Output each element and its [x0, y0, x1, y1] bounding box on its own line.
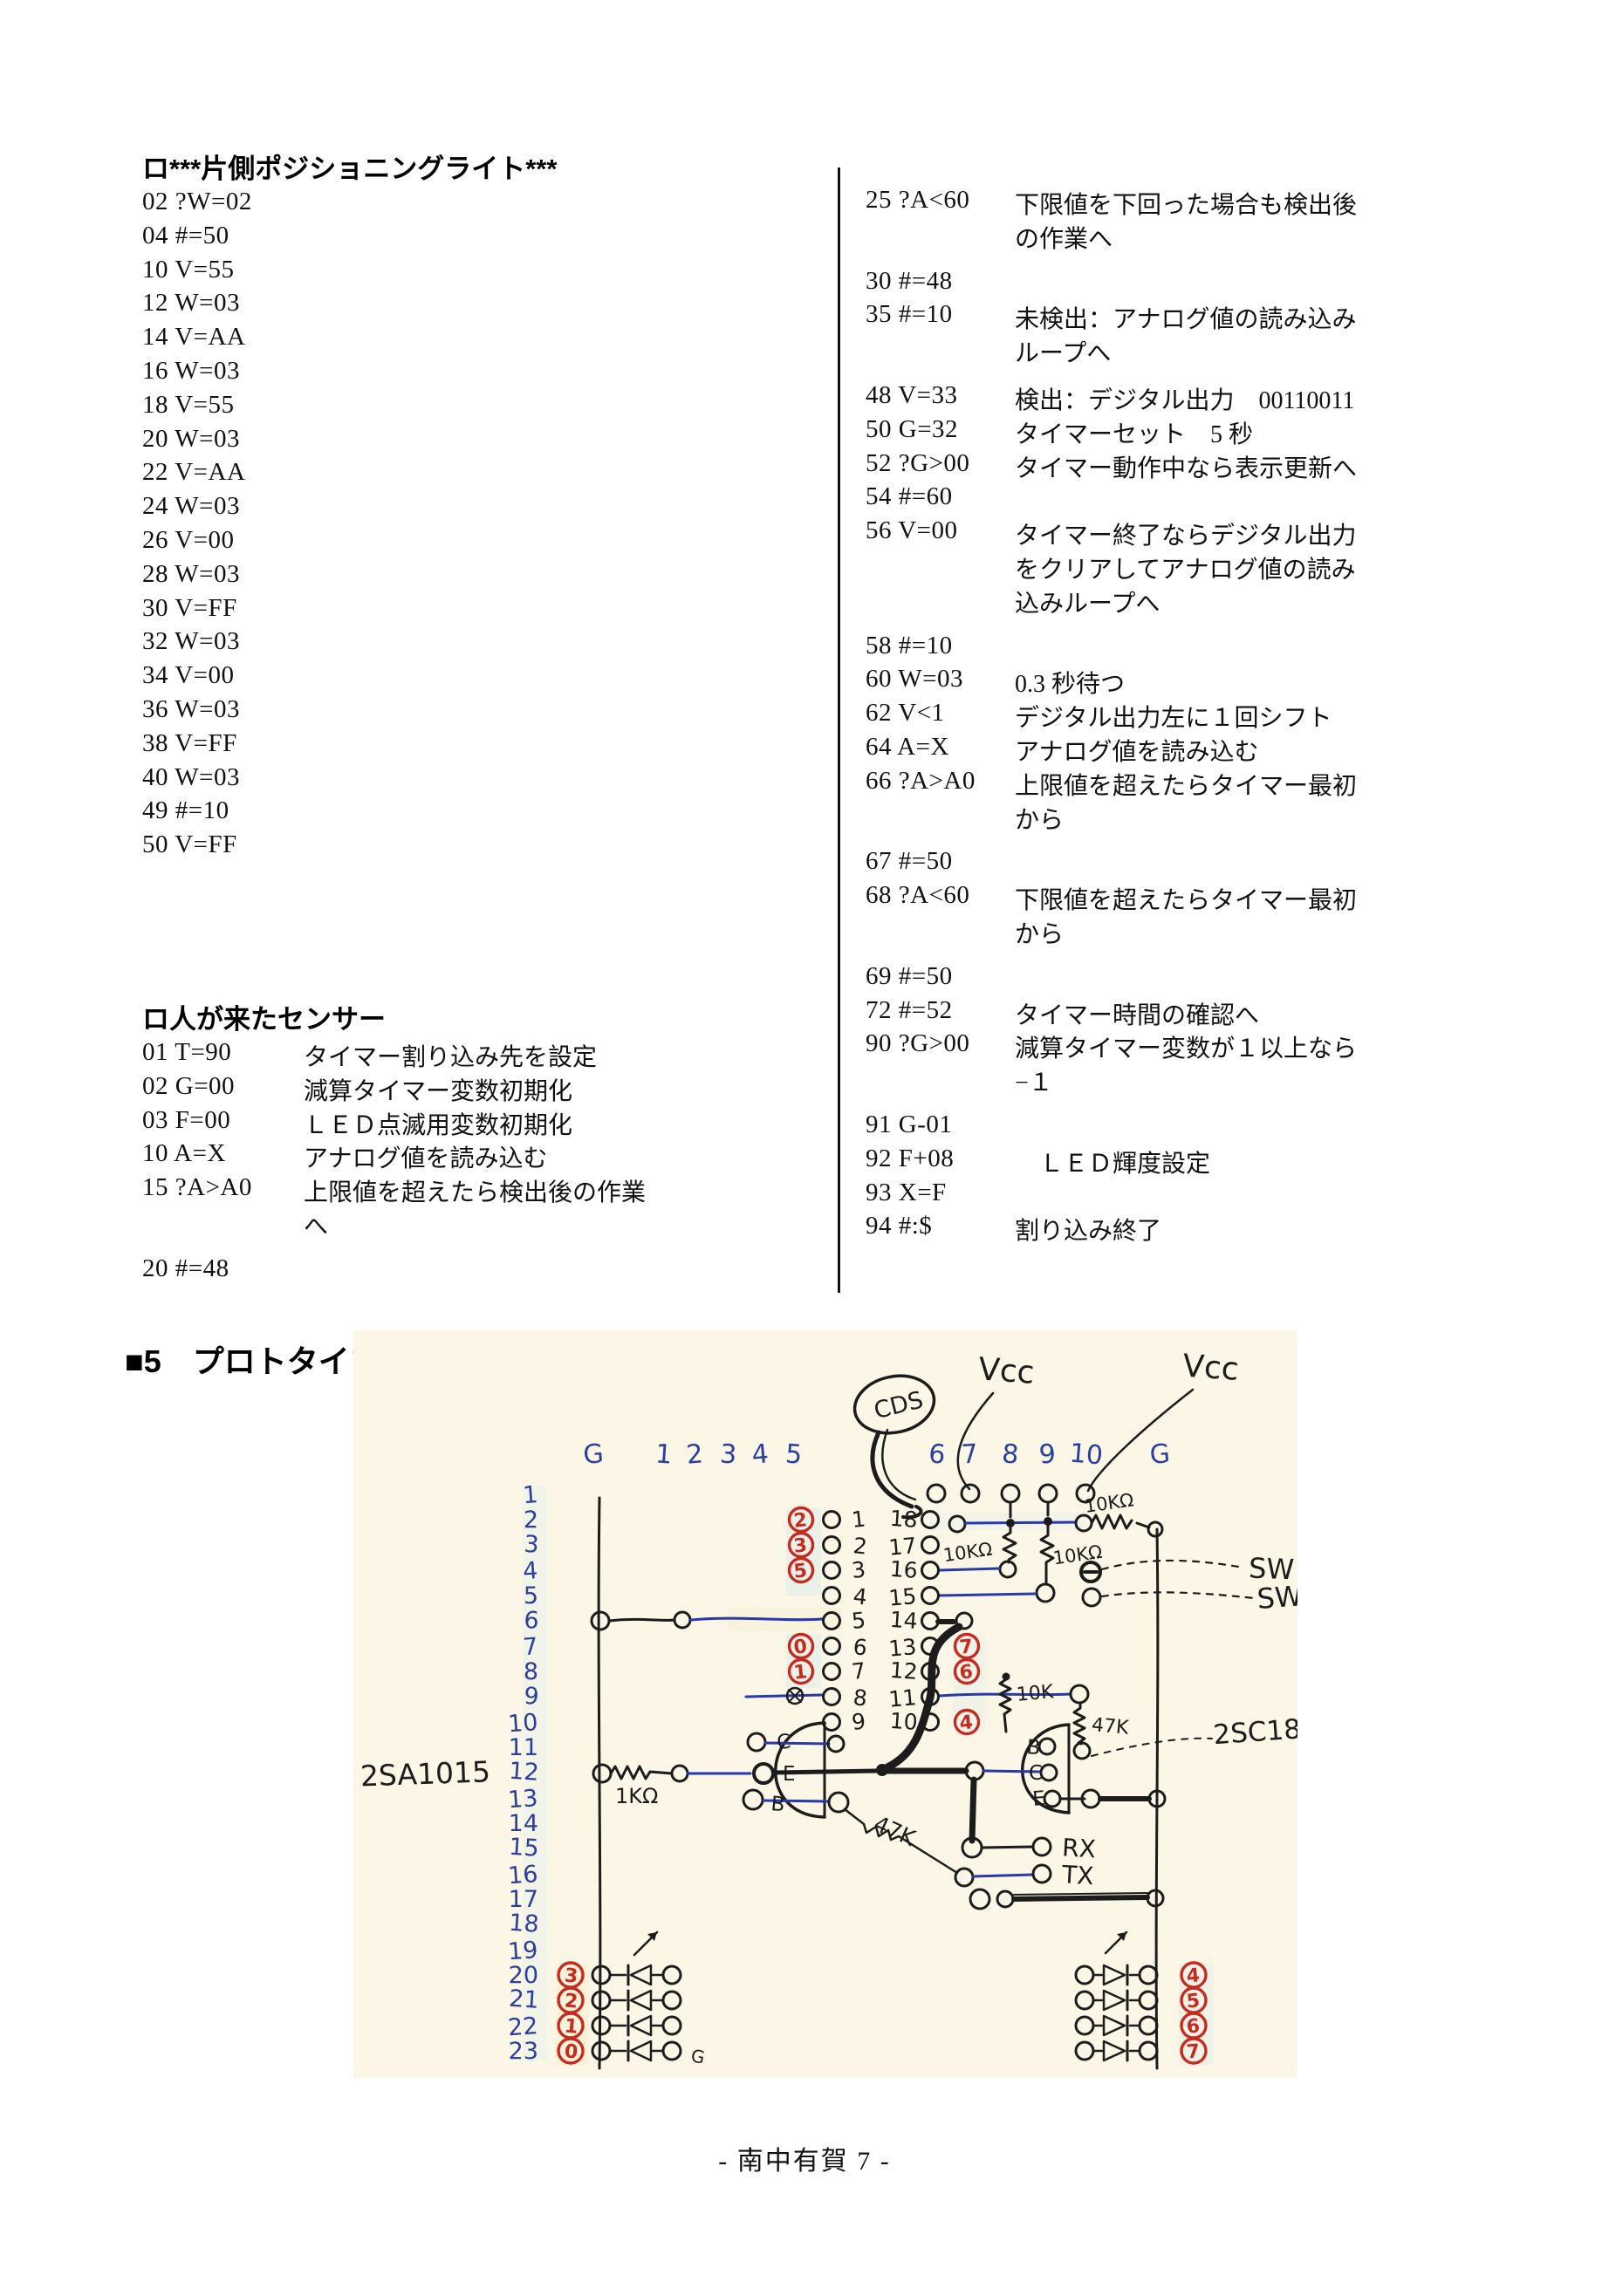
code-description: タイマーセット 5 秒 [1015, 415, 1253, 450]
red-circled-digit: 4 [958, 1712, 974, 1734]
column-header: 3 [719, 1438, 737, 1470]
code-line: 54 #=60 [866, 482, 1590, 516]
code-description: をクリアしてアナログ値の読み [1015, 550, 1356, 585]
code-line: 16 W=03 [142, 357, 823, 391]
transistor-pin-letter: B [770, 1793, 785, 1816]
red-circled-digit: 7 [1186, 2040, 1201, 2063]
code-text: 04 #=50 [142, 222, 229, 249]
column-header: 10 [1068, 1438, 1104, 1471]
code-line: 94 #:$割り込み終了 [866, 1212, 1590, 1246]
column-header: 4 [750, 1438, 770, 1471]
code-line: 03 F=00ＬＥＤ点滅用変数初期化 [142, 1106, 823, 1140]
code-text: 62 V<1 [866, 699, 945, 727]
code-text: 50 V=FF [142, 830, 237, 858]
column-header: 2 [685, 1438, 704, 1471]
code-line: へ [142, 1207, 823, 1241]
code-line: 02 G=00減算タイマー変数初期化 [142, 1072, 823, 1106]
code-text: 93 X=F [866, 1179, 947, 1206]
ic-pin-number: 14 [889, 1607, 919, 1634]
transistor-pin-letter: E [1031, 1787, 1046, 1811]
code-text: 34 V=00 [142, 661, 235, 689]
code-listing-person-sensor: ロ人が来たセンサー 01 T=90タイマー割り込み先を設定02 G=00減算タイ… [142, 997, 823, 1288]
code-text: 66 ?A>A0 [866, 767, 976, 795]
code-line: 18 V=55 [142, 391, 823, 425]
red-circled-digit: 3 [792, 1534, 808, 1557]
code-line: 32 W=03 [142, 627, 823, 661]
code-description: 込みループへ [1015, 584, 1160, 619]
code-description: 割り込み終了 [1015, 1212, 1161, 1247]
row-number: 2 [524, 1507, 538, 1534]
code-line: 50 G=32タイマーセット 5 秒 [866, 415, 1590, 449]
code-description: タイマー終了ならデジタル出力 [1015, 516, 1356, 551]
code-description: ＬＥＤ点滅用変数初期化 [304, 1106, 572, 1141]
code-text: 52 ?G>00 [866, 449, 969, 477]
column-header: 8 [1001, 1438, 1020, 1471]
red-circled-digit: 0 [792, 1636, 808, 1658]
row-number: 7 [522, 1633, 538, 1661]
code-text: 40 W=03 [142, 763, 240, 791]
right-ground-rail [1156, 1529, 1158, 2068]
transistor-left-label: 2SA1015 [359, 1754, 490, 1793]
section-heading-positioning-light: ロ***片側ポジショニングライト*** [142, 147, 823, 188]
row-number: 15 [508, 1834, 539, 1862]
code-listing-right-column: 25 ?A<60下限値を下回った場合も検出後の作業へ30 #=4835 #=10… [866, 186, 1590, 1246]
page-footer: - 南中有賀 7 - [0, 2139, 1609, 2177]
ic-pin-number: 6 [852, 1634, 868, 1661]
code-line: 25 ?A<60下限値を下回った場合も検出後 [866, 186, 1590, 220]
code-description: タイマー割り込み先を設定 [304, 1038, 597, 1073]
code-description: アナログ値を読み込む [1015, 733, 1258, 768]
row16-wire [940, 1568, 999, 1570]
code-text: 16 W=03 [142, 357, 240, 385]
code-text: 25 ?A<60 [866, 186, 969, 214]
code-line: 36 W=03 [142, 695, 823, 729]
red-circled-digit: 6 [958, 1661, 974, 1684]
row-number: 3 [523, 1531, 539, 1559]
code-description: −１ [1015, 1063, 1053, 1098]
code-description: へ [304, 1207, 328, 1242]
red-circled-digit: 4 [1186, 1965, 1201, 1987]
red-circled-digit: 1 [792, 1661, 808, 1684]
code-text: 03 F=00 [142, 1106, 230, 1134]
breadboard-sketch-image: CDS Vcc Vcc 10KΩ 10KΩ 10KΩ [353, 1330, 1297, 2078]
code-line: 69 #=50 [866, 962, 1590, 996]
code-text: 22 V=AA [142, 458, 245, 486]
code-text: 10 A=X [142, 1139, 226, 1167]
row-number: 9 [523, 1683, 539, 1711]
transistor-pin-letter: B [1025, 1736, 1041, 1760]
code-text: 49 #=10 [142, 796, 229, 824]
ic-pin-number: 16 [889, 1556, 919, 1583]
code-line: 24 W=03 [142, 492, 823, 526]
column-header: 7 [961, 1438, 979, 1470]
code-line: 49 #=10 [142, 796, 823, 830]
code-description: 0.3 秒待つ [1015, 665, 1125, 700]
code-line: 56 V=00タイマー終了ならデジタル出力 [866, 516, 1590, 550]
code-text: 24 W=03 [142, 492, 240, 520]
code-description: タイマー時間の確認へ [1015, 996, 1259, 1031]
code-line: 50 V=FF [142, 830, 823, 864]
code-text: 68 ?A<60 [866, 881, 969, 909]
row-number: 18 [508, 1910, 539, 1938]
code-text: 35 #=10 [866, 300, 953, 328]
red-circled-digit: 2 [564, 1990, 579, 2012]
code-description: 上限値を超えたらタイマー最初 [1015, 767, 1357, 802]
code-line: 91 G-01 [866, 1110, 1590, 1145]
row-number: 1 [522, 1481, 538, 1509]
ic-pin-number: 4 [852, 1583, 868, 1610]
transistor-pin-letter: C [1029, 1762, 1043, 1785]
code-text: 50 G=32 [866, 415, 958, 443]
code-text: 64 A=X [866, 733, 949, 761]
red-circled-digit: 3 [564, 1965, 579, 1987]
code-text: 30 V=FF [142, 594, 237, 622]
code-text: 92 F+08 [866, 1145, 954, 1172]
column-header: 9 [1038, 1438, 1057, 1470]
code-text: 38 V=FF [142, 729, 237, 757]
code-line: 92 F+08 ＬＥＤ輝度設定 [866, 1145, 1590, 1179]
row-number: 12 [508, 1758, 539, 1787]
code-text: 36 W=03 [142, 695, 240, 723]
red-circled-digit: 0 [564, 2040, 579, 2063]
code-line: 58 #=10 [866, 632, 1590, 666]
code-description: から [1015, 801, 1064, 836]
code-line: 10 A=Xアナログ値を読み込む [142, 1139, 823, 1173]
code-description: デジタル出力左に１回シフト [1015, 699, 1332, 734]
code-description: 検出：デジタル出力 00110011 [1015, 381, 1354, 416]
row-number: 23 [509, 2038, 538, 2065]
code-line: −１ [866, 1063, 1590, 1097]
code-text: 94 #:$ [866, 1212, 932, 1240]
code-text: 02 ?W=02 [142, 188, 252, 215]
code-description: 上限値を超えたら検出後の作業 [304, 1173, 646, 1208]
code-text: 12 W=03 [142, 289, 240, 317]
code-line: ループへ [866, 334, 1590, 368]
code-line: 64 A=Xアナログ値を読み込む [866, 733, 1590, 767]
code-line: 02 ?W=02 [142, 188, 823, 222]
ic-pin-number: 8 [852, 1684, 868, 1712]
code-text: 69 #=50 [866, 962, 953, 990]
code-text: 10 V=55 [142, 256, 235, 284]
resistor-10k-label: 10K [1016, 1681, 1055, 1706]
code-line: 01 T=90タイマー割り込み先を設定 [142, 1038, 823, 1072]
red-circled-digit: 6 [1186, 2015, 1201, 2038]
code-lines-container: 01 T=90タイマー割り込み先を設定02 G=00減算タイマー変数初期化03 … [142, 1038, 823, 1288]
code-text: 56 V=00 [866, 516, 958, 544]
code-text: 90 ?G>00 [866, 1029, 969, 1057]
code-text: 20 #=48 [142, 1254, 229, 1282]
code-text: 28 W=03 [142, 560, 240, 588]
code-listing-positioning-light: ロ***片側ポジショニングライト*** 02 ?W=0204 #=5010 V=… [142, 147, 823, 864]
code-line: 66 ?A>A0上限値を超えたらタイマー最初 [866, 767, 1590, 801]
code-line: 14 V=AA [142, 323, 823, 357]
column-header: 6 [928, 1438, 947, 1471]
code-line: 30 #=48 [866, 267, 1590, 301]
code-description: ループへ [1015, 334, 1111, 369]
vcc-right-label: Vcc [1181, 1349, 1240, 1388]
code-text: 02 G=00 [142, 1072, 235, 1100]
row15-wire [940, 1594, 1036, 1596]
code-line: 34 V=00 [142, 661, 823, 695]
column-divider-line [838, 167, 840, 1293]
row-number: 5 [524, 1582, 538, 1609]
code-line: 90 ?G>00減算タイマー変数が１以上なら [866, 1029, 1590, 1063]
ic-pin-number: 12 [889, 1657, 919, 1684]
code-lines-container: 25 ?A<60下限値を下回った場合も検出後の作業へ30 #=4835 #=10… [866, 186, 1590, 1246]
code-text: 15 ?A>A0 [142, 1173, 252, 1201]
ic-pin-number: 3 [851, 1556, 867, 1583]
code-text: 60 W=03 [866, 665, 963, 693]
code-line: 67 #=50 [866, 847, 1590, 881]
ic-pin-number: 18 [889, 1506, 919, 1533]
code-text: 14 V=AA [142, 323, 245, 351]
code-line: 04 #=50 [142, 222, 823, 256]
code-line: をクリアしてアナログ値の読み [866, 550, 1590, 584]
red-circled-digit: 7 [958, 1636, 974, 1658]
red-circled-digit: 2 [792, 1509, 808, 1532]
resistor-1k-label: 1KΩ [615, 1784, 658, 1808]
row-number: 21 [508, 1985, 539, 2014]
row-number: 4 [522, 1557, 538, 1585]
vcc-left-label: Vcc [977, 1351, 1036, 1391]
transistor-right-label: 2SC181 [1212, 1712, 1297, 1751]
code-line: から [866, 801, 1590, 835]
code-line: 62 V<1デジタル出力左に１回シフト [866, 699, 1590, 733]
code-line: 68 ?A<60下限値を超えたらタイマー最初 [866, 881, 1590, 915]
code-line: 52 ?G>00タイマー動作中なら表示更新へ [866, 449, 1590, 483]
code-text: 48 V=33 [866, 381, 958, 409]
code-line: 12 W=03 [142, 289, 823, 323]
code-text: 26 V=00 [142, 526, 235, 554]
code-description: 下限値を下回った場合も検出後 [1015, 186, 1357, 221]
code-line: 35 #=10未検出：アナログ値の読み込み [866, 300, 1590, 334]
code-text: 01 T=90 [142, 1038, 231, 1066]
scanned-document-page: { "page": { "footer": "- 南中有賀 7 -" }, "c… [0, 0, 1609, 2296]
ic-pin-number: 10 [889, 1708, 919, 1735]
column-header: G [582, 1438, 605, 1471]
code-line: 込みループへ [866, 584, 1590, 618]
resistor-47k-vertical-label: 47K [1091, 1714, 1130, 1739]
section-heading-person-sensor: ロ人が来たセンサー [142, 997, 823, 1038]
code-line: から [866, 915, 1590, 949]
code-line: 72 #=52タイマー時間の確認へ [866, 996, 1590, 1030]
code-line: 28 W=03 [142, 560, 823, 594]
code-text: 18 V=55 [142, 391, 235, 419]
red-circled-digit: 5 [792, 1560, 808, 1582]
row-number: 8 [524, 1658, 538, 1685]
code-description: タイマー動作中なら表示更新へ [1015, 449, 1357, 484]
code-line: 15 ?A>A0上限値を超えたら検出後の作業 [142, 1173, 823, 1207]
code-lines-container: 02 ?W=0204 #=5010 V=5512 W=0314 V=AA16 W… [142, 188, 823, 864]
code-text: 30 #=48 [866, 267, 953, 295]
code-text: 54 #=60 [866, 482, 953, 510]
red-circled-digit: 1 [564, 2015, 579, 2038]
code-description: から [1015, 915, 1064, 950]
ic-pin-number: 1 [851, 1506, 867, 1533]
code-line: 93 X=F [866, 1179, 1590, 1213]
column-header: 1 [654, 1438, 673, 1470]
code-line: 38 V=FF [142, 729, 823, 763]
transistor-pin-letter: C [776, 1731, 791, 1754]
tx-label: TX [1060, 1860, 1094, 1890]
code-description: ＬＥＤ輝度設定 [1015, 1145, 1210, 1179]
code-description: の作業へ [1015, 220, 1113, 255]
ic-pin-number: 2 [852, 1533, 868, 1560]
code-line: 10 V=55 [142, 256, 823, 290]
code-line: 20 #=48 [142, 1254, 823, 1288]
code-text: 91 G-01 [866, 1110, 952, 1138]
ic-pin-number: 7 [851, 1657, 867, 1684]
red-circled-digit: 5 [1186, 1990, 1201, 2012]
code-line: の作業へ [866, 220, 1590, 254]
code-line: 60 W=030.3 秒待つ [866, 665, 1590, 699]
code-line: 48 V=33検出：デジタル出力 00110011 [866, 381, 1590, 415]
ic-pin-number: 5 [851, 1607, 867, 1634]
row-number: 6 [523, 1607, 539, 1635]
ic-pin-number: 9 [851, 1708, 867, 1735]
code-description: アナログ値を読み込む [304, 1139, 547, 1174]
code-line: 20 W=03 [142, 425, 823, 459]
code-line: 22 V=AA [142, 458, 823, 492]
code-text: 20 W=03 [142, 425, 240, 453]
code-text: 72 #=52 [866, 996, 953, 1024]
switch2-label: SW [1256, 1579, 1297, 1616]
code-line: 30 V=FF [142, 594, 823, 628]
code-line: 26 V=00 [142, 526, 823, 560]
code-line: 40 W=03 [142, 763, 823, 797]
rx-label: RX [1061, 1833, 1096, 1863]
transistor-pin-letter: E [783, 1763, 796, 1786]
code-description: 未検出：アナログ値の読み込み [1015, 300, 1356, 335]
column-header: 5 [784, 1438, 803, 1470]
code-description: 減算タイマー変数初期化 [304, 1072, 572, 1107]
code-text: 58 #=10 [866, 632, 953, 659]
code-description: 減算タイマー変数が１以上なら [1015, 1029, 1357, 1064]
column-header: G [1149, 1438, 1172, 1471]
code-text: 32 W=03 [142, 627, 240, 655]
code-description: 下限値を超えたらタイマー最初 [1015, 881, 1357, 916]
code-text: 67 #=50 [866, 847, 953, 875]
